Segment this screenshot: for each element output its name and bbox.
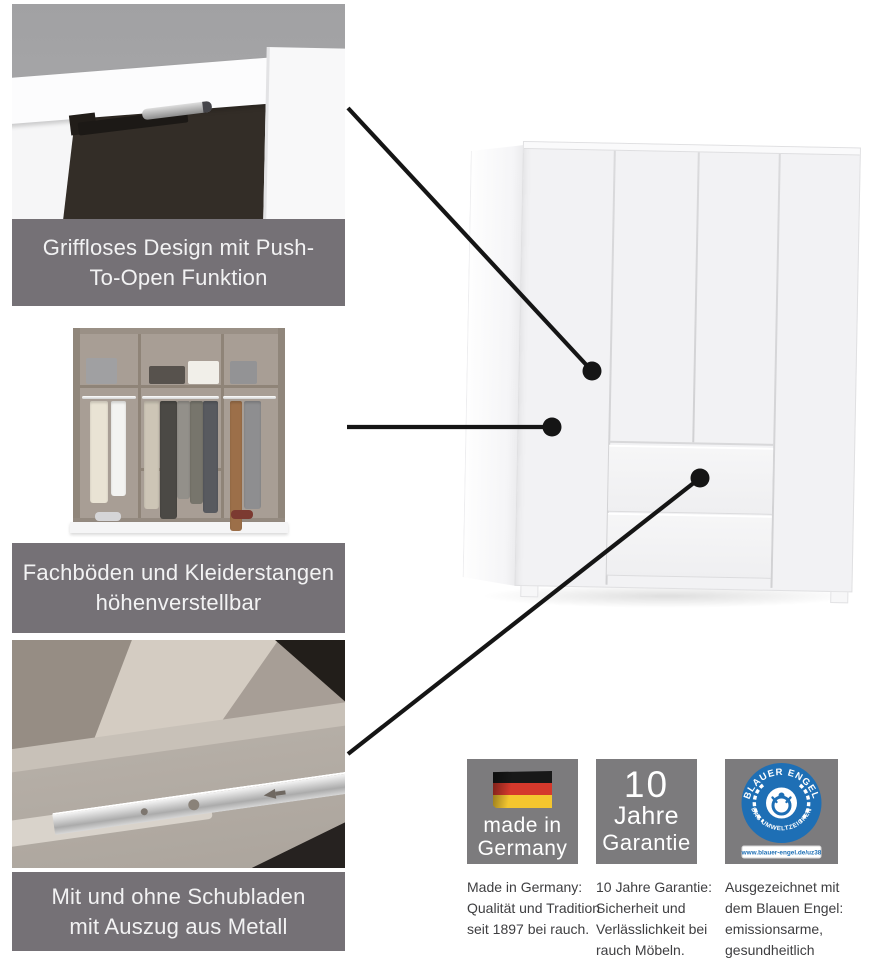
garment — [190, 401, 203, 504]
caption-line: mit Auszug aus Metall — [69, 912, 287, 942]
folded-clothes-dark — [149, 366, 185, 384]
clothes-rail — [142, 396, 219, 399]
badge-10-jahre-garantie: 10 Jahre Garantie — [596, 759, 697, 864]
product-infographic: Griffloses Design mit Push- To-Open Funk… — [0, 0, 896, 960]
engel-url-text: www.blauer-engel.de/uz38 — [741, 850, 822, 857]
door-separator — [770, 154, 780, 588]
badge-made-in-germany: made in Germany — [467, 759, 578, 864]
clothes-rail — [82, 396, 136, 399]
shoes — [231, 510, 253, 519]
storage-basket — [86, 358, 117, 384]
badge-label: Germany — [478, 837, 568, 860]
blauer-engel-logo: BLAUER ENGEL DAS UMWELTZEICHEN www.blaue… — [725, 759, 838, 864]
garment — [144, 401, 159, 509]
garment — [160, 401, 177, 519]
wardrobe-top-edge — [524, 142, 860, 155]
photo-drawer-rail — [12, 640, 345, 868]
feature-caption-drawers: Mit und ohne Schubladen mit Auszug aus M… — [12, 872, 345, 951]
rail-hole — [140, 808, 148, 816]
badge-label: Jahre — [614, 803, 679, 830]
wardrobe-side-panel — [462, 144, 523, 586]
wardrobe-drawer-2 — [607, 513, 772, 579]
wardrobe-foot — [830, 591, 848, 603]
caption-line: Fachböden und Kleiderstangen — [23, 558, 334, 588]
clothes-rail — [223, 396, 276, 399]
photo-wardrobe-interior — [73, 328, 285, 533]
interior-divider — [221, 334, 224, 521]
cabinet-side-panel — [263, 47, 345, 219]
wardrobe-drawer-1 — [608, 445, 773, 515]
caption-line: Griffloses Design mit Push- — [43, 233, 315, 263]
storage-boxes — [230, 361, 257, 384]
feature-caption-push-to-open: Griffloses Design mit Push- To-Open Funk… — [12, 219, 345, 306]
badge-caption-made-in-germany: Made in Germany: Qualität und Tradition … — [467, 877, 600, 940]
garment — [90, 401, 108, 503]
feature-caption-shelves: Fachböden und Kleiderstangen höhenverste… — [12, 543, 345, 633]
garment — [203, 401, 218, 513]
rail-arrow-cutout — [263, 789, 276, 801]
shoes — [95, 512, 121, 521]
interior-divider — [138, 334, 141, 521]
caption-line: To-Open Funktion — [89, 263, 267, 293]
engel-figure-head — [779, 793, 785, 799]
garment — [244, 401, 261, 509]
rail-hole — [188, 799, 200, 811]
wardrobe-foot — [520, 585, 538, 597]
badge-caption-garantie: 10 Jahre Garantie: Sicherheit und Verläs… — [596, 877, 712, 960]
wardrobe-front — [514, 141, 860, 592]
wardrobe-illustration — [462, 140, 862, 607]
garment — [111, 401, 126, 496]
german-flag-icon — [493, 771, 552, 808]
photo-push-to-open — [12, 4, 345, 219]
door-separator — [692, 152, 700, 442]
interior-top-shelf — [80, 385, 278, 388]
interior-base — [70, 522, 288, 533]
badge-blauer-engel: BLAUER ENGEL DAS UMWELTZEICHEN www.blaue… — [725, 759, 838, 864]
badge-label: made in — [483, 814, 561, 837]
folded-towels — [188, 361, 219, 384]
garment — [177, 401, 190, 499]
caption-line: Mit und ohne Schubladen — [51, 882, 305, 912]
caption-line: höhenverstellbar — [96, 588, 262, 618]
badge-label: 10 — [624, 767, 669, 803]
badge-caption-blauer-engel: Ausgezeichnet mit dem Blauen Engel: emis… — [725, 877, 861, 960]
badge-label: Garantie — [602, 830, 690, 856]
